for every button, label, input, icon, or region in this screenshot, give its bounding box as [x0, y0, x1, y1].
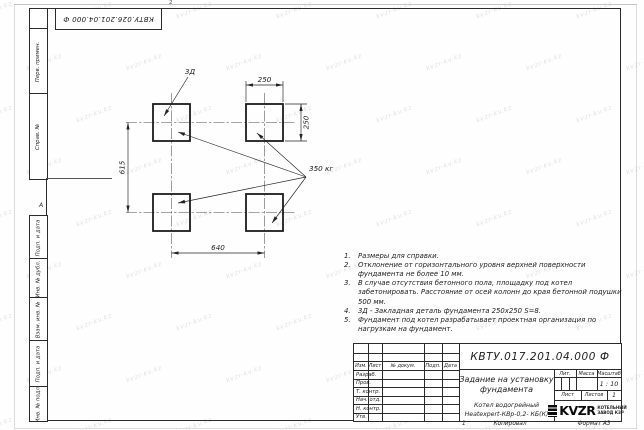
- dimension-texts: 250 250 615 640 3Д 350 кг: [118, 67, 334, 252]
- tb-mass-label: Масса: [576, 371, 597, 377]
- zone-mark-side: А: [39, 202, 43, 209]
- page-edge-bottom: [14, 428, 637, 429]
- tb-role-prov: Пров.: [356, 380, 382, 386]
- note-4: 4.3Д - Закладная деталь фундамента 250х2…: [344, 307, 632, 316]
- tb-sheet-label: Лист: [554, 392, 581, 398]
- tb-role-utv: Утв.: [356, 414, 382, 420]
- tb-role-nkontr: Н. контр.: [356, 406, 382, 412]
- margin-stamp-podp-data-1: Подп. и дата: [29, 215, 48, 260]
- page-edge-top: [14, 4, 637, 5]
- corner-designation-box: КВТУ.026.201.04.000 Ф: [55, 8, 162, 30]
- footer-copied-label: Копировал: [478, 421, 542, 427]
- margin-stamp-sprav-no: Справ. №: [29, 93, 48, 180]
- tb-col-izm: Изм.: [354, 363, 368, 369]
- tb-product-name: Котел водогрейный Heatexpert-КВр-0,2- КБ…: [459, 400, 554, 421]
- watermark-text: kvzr-kv.kz: [0, 0, 13, 21]
- margin-stamp-podp-data-2: Подп. и дата: [29, 340, 48, 388]
- dim-pad-height: 250: [302, 115, 311, 129]
- notes-list: 1.Размеры для справки. 2.Отклонение от г…: [344, 252, 632, 334]
- dim-col-spacing: 640: [211, 243, 225, 252]
- watermark-text: kvzr-kv.kz: [625, 363, 644, 384]
- tb-lit-label: Лит.: [554, 371, 576, 377]
- corner-designation-text: КВТУ.026.201.04.000 Ф: [63, 15, 154, 23]
- margin-stamp-inv-dubl: Инв. № дубл.: [29, 258, 48, 299]
- tb-sheets-label: Листов: [581, 392, 607, 398]
- watermark-text: kvzr-kv.kz: [0, 207, 13, 228]
- tb-doc-title: Задание на установку фундамента: [459, 369, 554, 400]
- tb-role-razrab: Разраб.: [356, 372, 382, 378]
- dim-pad-width: 250: [258, 75, 272, 84]
- page-edge-right: [636, 4, 637, 429]
- watermark-text: kvzr-kv.kz: [625, 51, 644, 72]
- dim-row-spacing: 615: [118, 160, 127, 174]
- zone-mark-top: 2: [169, 0, 173, 6]
- tb-role-tkontr: Т. контр.: [356, 389, 382, 395]
- load-label: 350 кг: [309, 164, 333, 173]
- watermark-text: kvzr-kv.kz: [0, 415, 13, 430]
- note-2: 2.Отклонение от горизонтального уровня в…: [344, 261, 632, 279]
- note-3: 3.В случае отсутствия бетонного пола, пл…: [344, 279, 632, 306]
- watermark-text: kvzr-kv.kz: [625, 155, 644, 176]
- tb-role-nachotd: Нач. отд.: [356, 397, 382, 403]
- centerlines: [126, 93, 296, 258]
- tb-col-data: Дата: [442, 363, 459, 369]
- margin-stamp-perv-primen: Перв. примен.: [29, 28, 48, 95]
- tb-col-doc: № докум.: [382, 363, 424, 369]
- margin-stamp-vzam-inv: Взам. инв. №: [29, 297, 48, 342]
- tb-designation: КВТУ.017.201.04.000 Ф: [459, 344, 621, 369]
- footer-sheet-num: 1: [462, 421, 466, 427]
- kvzr-logo-text: KVZR: [559, 403, 595, 418]
- kvzr-logo-icon: [548, 405, 557, 417]
- note-5: 5.Фундамент под котел разрабатывает прое…: [344, 316, 632, 334]
- page-edge-left: [14, 4, 15, 429]
- tb-scale-value: 1 : 10: [597, 377, 621, 390]
- company-name: КОТЕЛЬНЫЙ ЗАВОД КЗР: [597, 406, 626, 416]
- note-1: 1.Размеры для справки.: [344, 252, 632, 261]
- foundation-plan-drawing: 250 250 615 640 3Д 350 кг: [100, 55, 360, 270]
- title-block: Изм. Лист № докум. Подп. Дата Разраб. Пр…: [353, 343, 622, 422]
- tb-col-list: Лист: [368, 363, 382, 369]
- watermark-text: kvzr-kv.kz: [0, 103, 13, 124]
- tb-sheets-value: 1: [607, 390, 621, 400]
- embedded-detail-label: 3Д: [185, 67, 196, 76]
- tb-col-podp: Подп.: [424, 363, 442, 369]
- tb-scale-label: Масштаб: [597, 371, 621, 377]
- margin-stamp-inv-podl: Инв. № подл.: [29, 386, 48, 422]
- tb-logo-zone: KVZR КОТЕЛЬНЫЙ ЗАВОД КЗР: [554, 400, 621, 421]
- foundation-pads: [153, 104, 283, 231]
- watermark-text: kvzr-kv.kz: [0, 311, 13, 332]
- margin-stamp-empty: [29, 8, 48, 30]
- drawing-sheet: kvzr-kv.kzkvzr-kv.kzkvzr-kv.kzkvzr-kv.kz…: [0, 0, 644, 430]
- footer-format-label: Формат А3: [568, 421, 620, 427]
